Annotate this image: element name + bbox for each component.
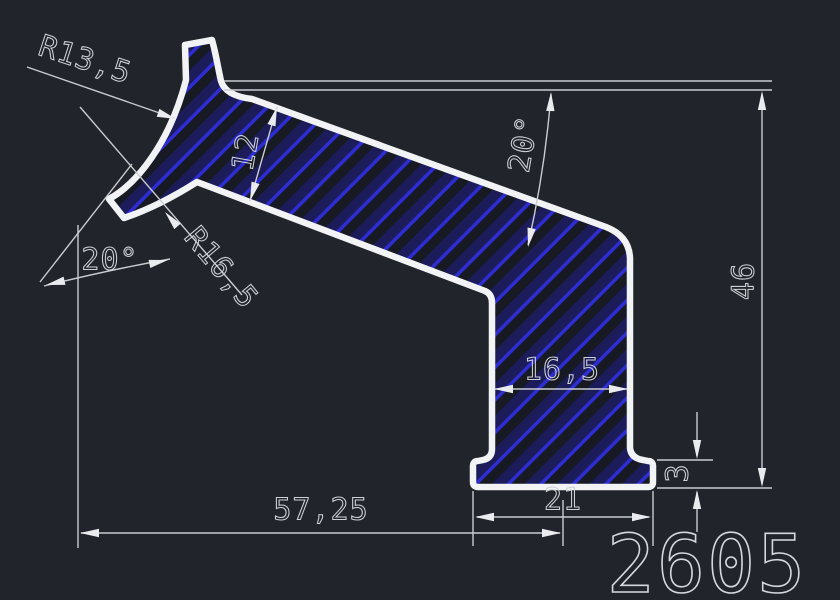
angle-bottom-label: 20° (81, 243, 138, 278)
overall-height-label: 46 (727, 262, 762, 300)
technical-drawing: R13,5 R16,5 12 20° 20° 46 16,5 (0, 0, 840, 600)
overall-length-label: 57,25 (273, 493, 368, 528)
part-number: 2605 (607, 518, 808, 600)
leg-width-label: 16,5 (524, 353, 600, 388)
arm-thickness-label: 12 (225, 130, 266, 174)
cad-canvas: R13,5 R16,5 12 20° 20° 46 16,5 (0, 0, 840, 600)
flange-thickness-label: 3 (661, 463, 696, 482)
flange-width-label: 21 (544, 483, 582, 518)
